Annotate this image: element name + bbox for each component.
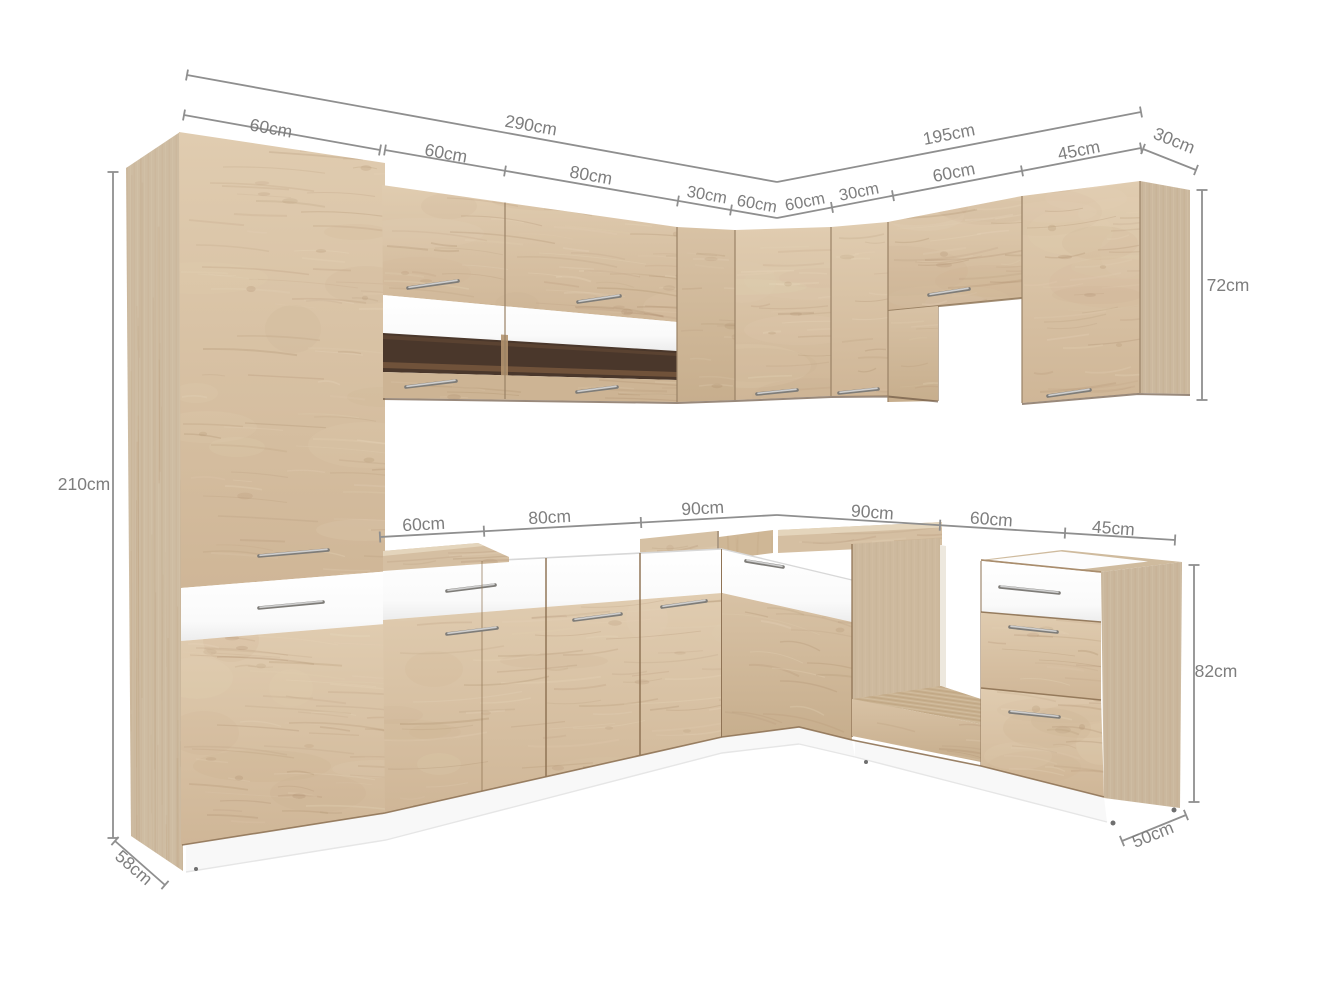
svg-text:45cm: 45cm	[1091, 517, 1135, 540]
svg-text:60cm: 60cm	[402, 513, 446, 535]
svg-text:72cm: 72cm	[1207, 275, 1250, 295]
svg-text:90cm: 90cm	[681, 497, 725, 519]
svg-text:210cm: 210cm	[58, 474, 111, 494]
svg-text:82cm: 82cm	[1195, 661, 1238, 681]
svg-text:90cm: 90cm	[850, 501, 894, 524]
svg-text:80cm: 80cm	[528, 506, 572, 528]
svg-text:60cm: 60cm	[969, 508, 1013, 531]
